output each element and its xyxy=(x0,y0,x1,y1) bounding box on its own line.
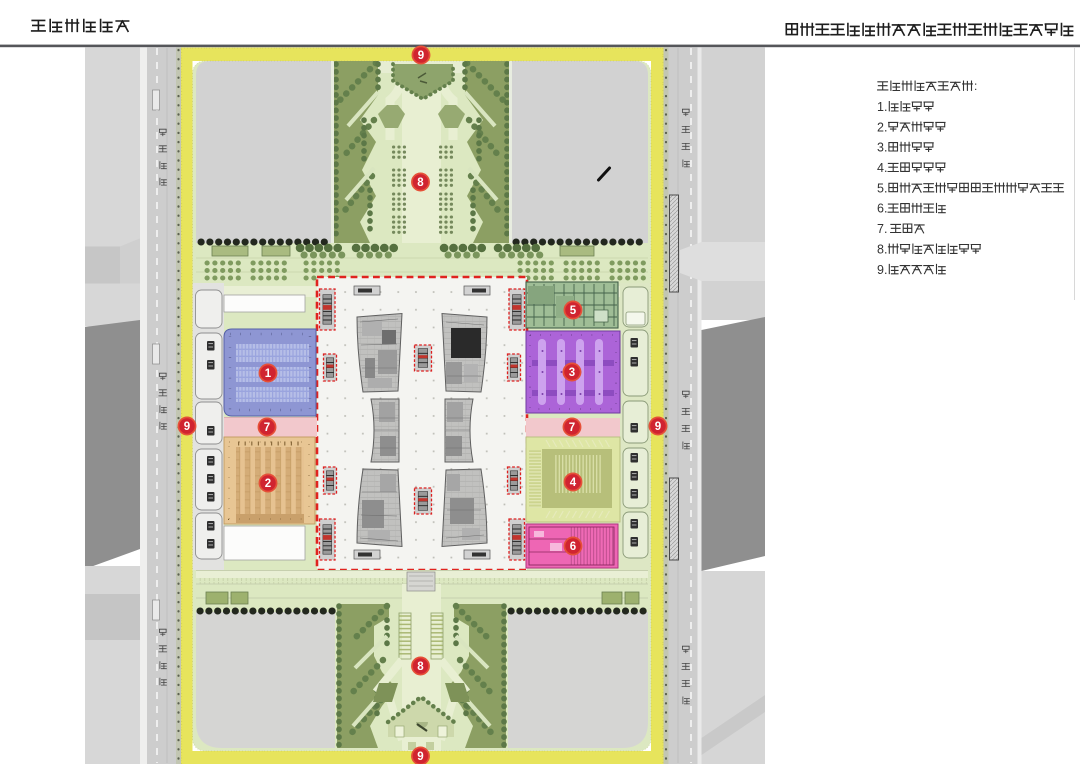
svg-text:3: 3 xyxy=(569,367,575,379)
svg-text:5: 5 xyxy=(570,305,577,317)
svg-text:4.: 4. xyxy=(877,161,887,175)
svg-text:9.: 9. xyxy=(877,263,887,277)
svg-text:2: 2 xyxy=(265,478,271,490)
svg-text:5.: 5. xyxy=(877,181,887,195)
svg-text:7: 7 xyxy=(264,422,270,434)
svg-text:3.: 3. xyxy=(877,141,887,155)
svg-text::: : xyxy=(974,79,977,93)
svg-text:1: 1 xyxy=(265,368,272,380)
svg-text:9: 9 xyxy=(655,421,661,433)
svg-text:2.: 2. xyxy=(877,120,887,134)
svg-text:9: 9 xyxy=(184,421,190,433)
svg-text:7: 7 xyxy=(569,422,575,434)
svg-text:7.: 7. xyxy=(877,222,887,236)
svg-text:8: 8 xyxy=(417,177,424,189)
svg-text:1.: 1. xyxy=(877,100,887,114)
svg-text:9: 9 xyxy=(418,50,424,62)
svg-text:6.: 6. xyxy=(877,202,887,216)
svg-text:6: 6 xyxy=(570,541,576,553)
svg-text:8: 8 xyxy=(417,661,424,673)
svg-text:8.: 8. xyxy=(877,242,887,256)
svg-text:4: 4 xyxy=(570,477,577,489)
svg-text:9: 9 xyxy=(417,751,423,763)
